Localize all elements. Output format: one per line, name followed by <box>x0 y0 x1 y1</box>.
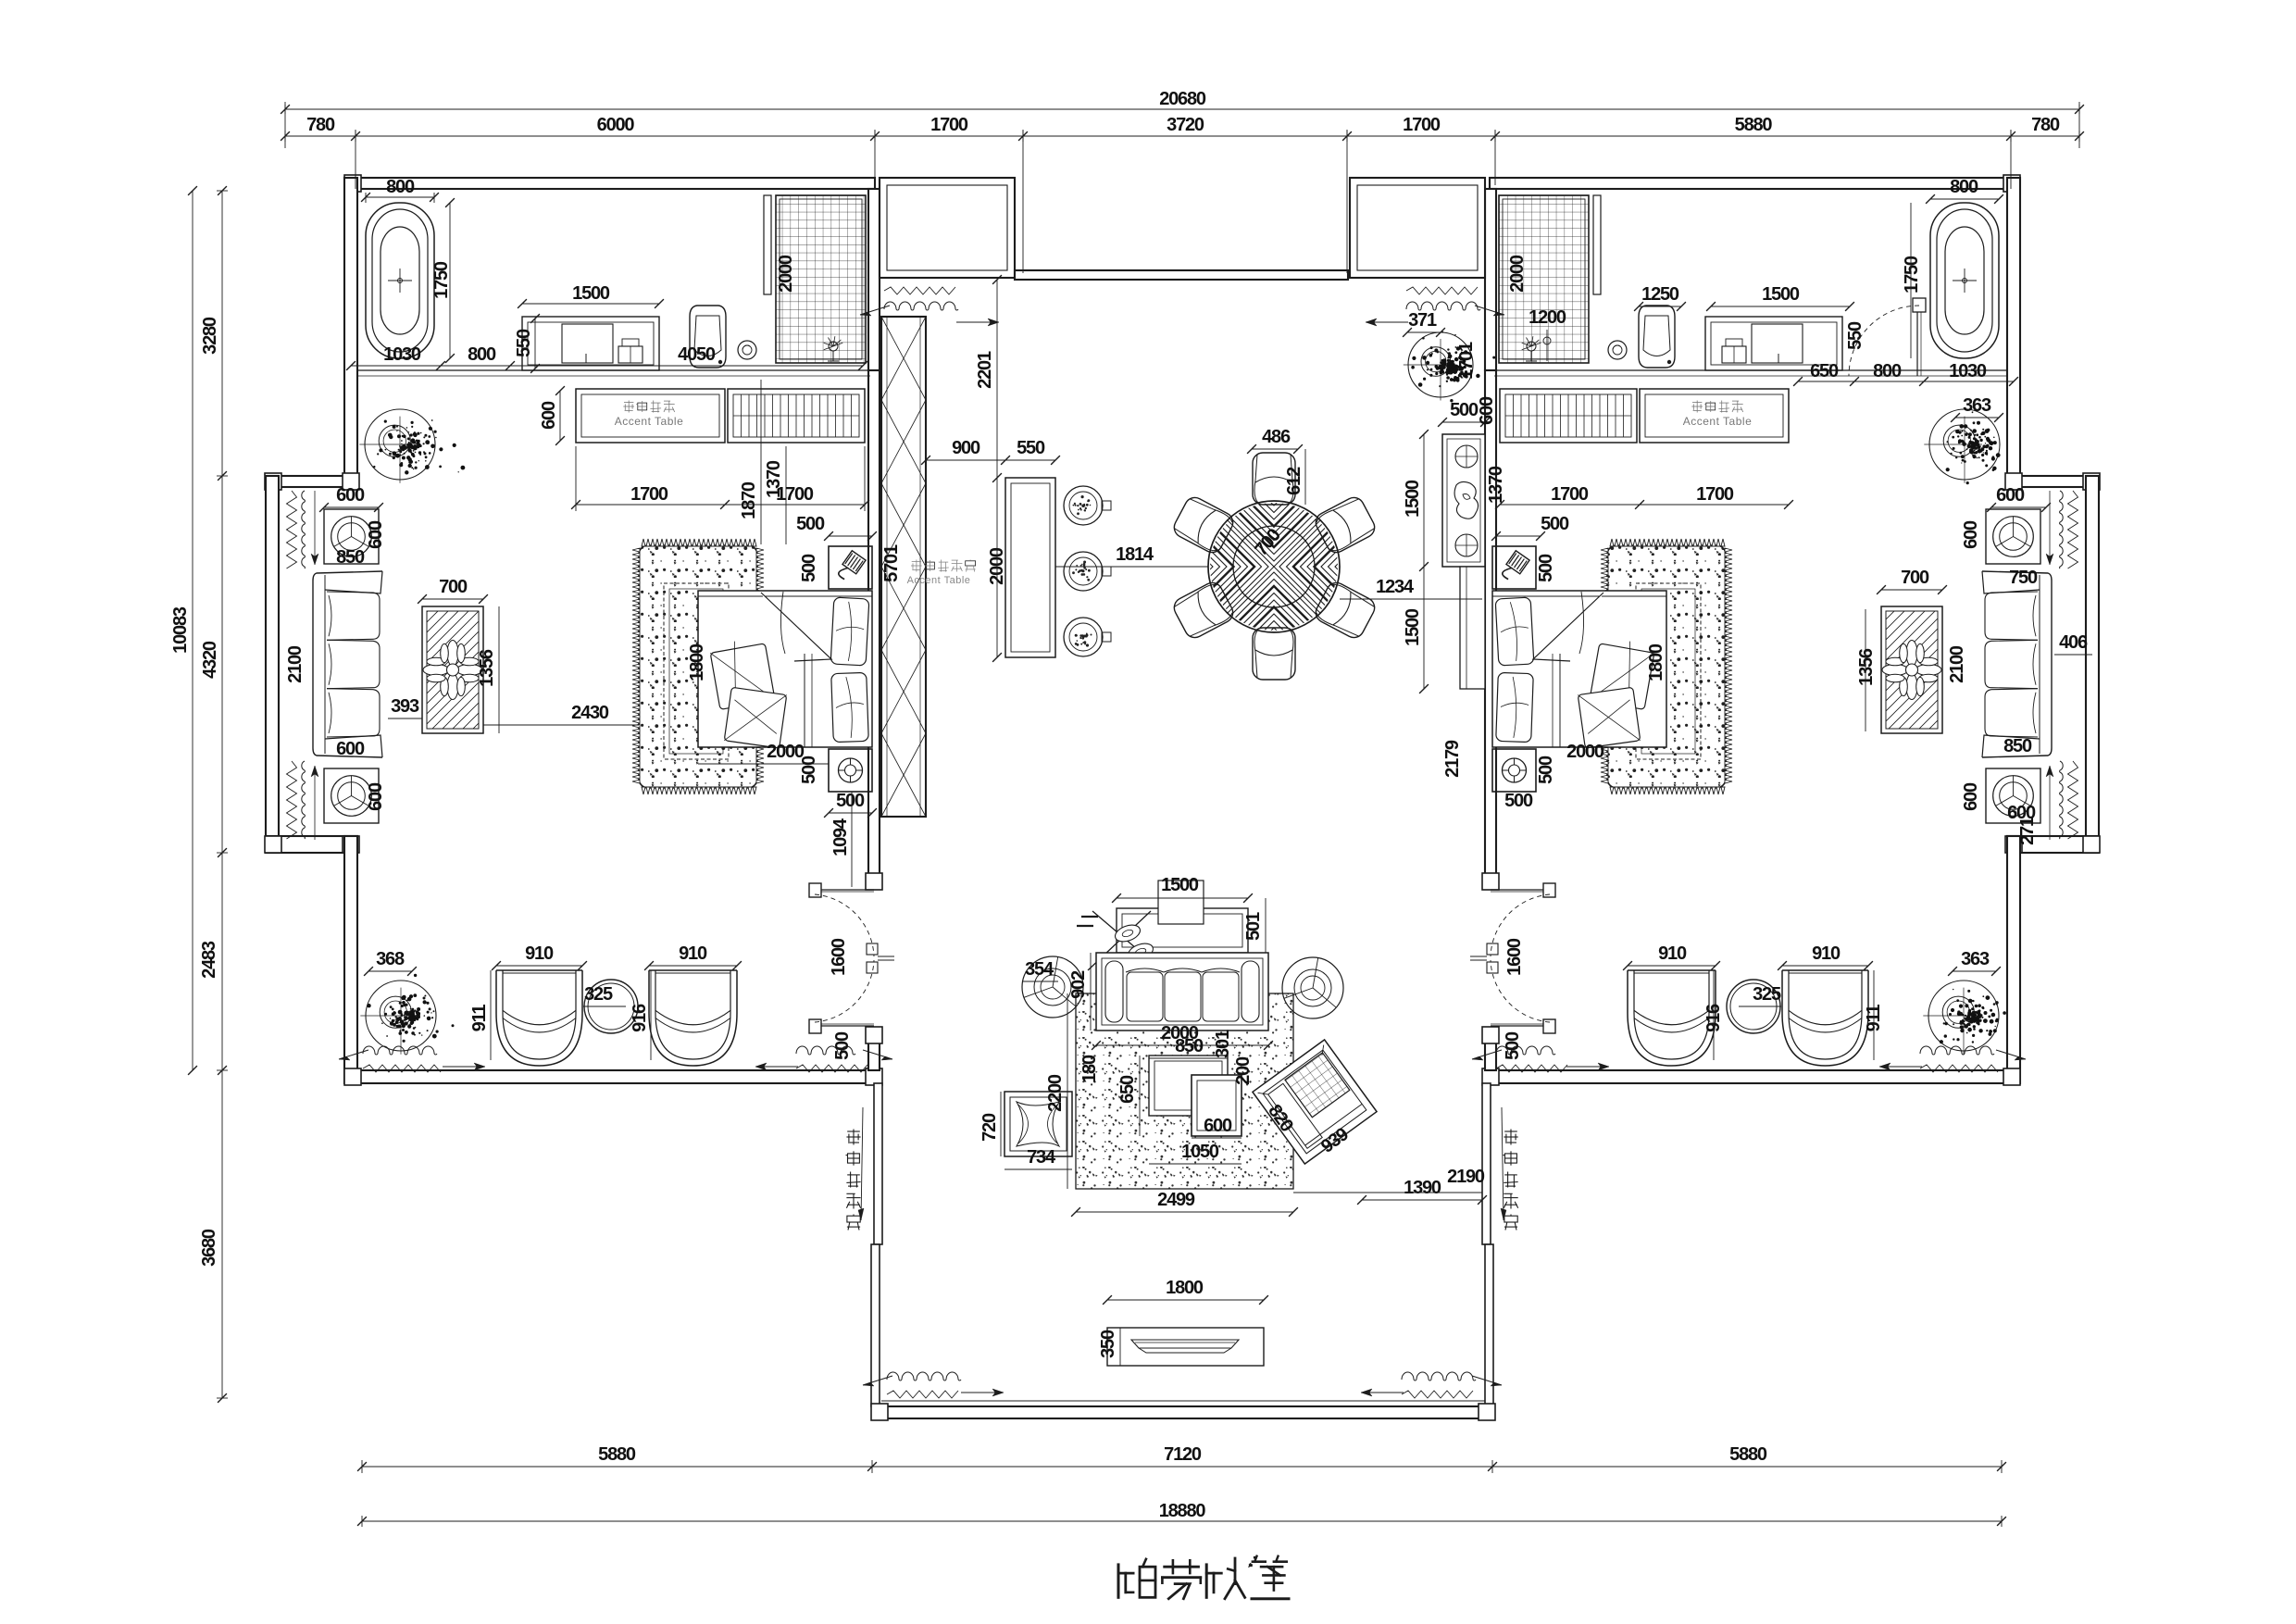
svg-text:2190: 2190 <box>1447 1167 1485 1187</box>
svg-text:600: 600 <box>1961 520 1981 549</box>
svg-text:850: 850 <box>2003 736 2032 756</box>
svg-text:4320: 4320 <box>200 641 220 679</box>
svg-text:20680: 20680 <box>1159 89 1206 109</box>
svg-text:1700: 1700 <box>1403 115 1441 135</box>
svg-text:1500: 1500 <box>1403 480 1423 518</box>
svg-text:5880: 5880 <box>1735 115 1773 135</box>
svg-text:780: 780 <box>306 115 335 135</box>
svg-text:600: 600 <box>1477 396 1497 425</box>
svg-text:850: 850 <box>336 547 365 568</box>
svg-text:363: 363 <box>1963 395 1991 416</box>
svg-text:1800: 1800 <box>1646 643 1666 681</box>
svg-text:371: 371 <box>1408 310 1437 331</box>
svg-text:393: 393 <box>391 696 419 717</box>
svg-text:1094: 1094 <box>830 818 851 856</box>
svg-text:354: 354 <box>1025 959 1054 980</box>
svg-text:2483: 2483 <box>199 941 219 979</box>
svg-text:3720: 3720 <box>1167 115 1204 135</box>
svg-text:900: 900 <box>952 438 980 458</box>
svg-text:5701: 5701 <box>881 544 902 582</box>
svg-text:650: 650 <box>1810 361 1839 381</box>
svg-text:1500: 1500 <box>1403 608 1423 646</box>
svg-text:Accent Table: Accent Table <box>907 575 971 586</box>
svg-text:1814: 1814 <box>1116 544 1154 565</box>
svg-text:5880: 5880 <box>598 1444 636 1465</box>
svg-text:368: 368 <box>376 949 405 969</box>
svg-text:1050: 1050 <box>1181 1142 1219 1162</box>
svg-text:363: 363 <box>1961 949 1990 969</box>
svg-text:916: 916 <box>630 1004 650 1032</box>
svg-text:6000: 6000 <box>597 115 635 135</box>
svg-text:1500: 1500 <box>1762 284 1800 305</box>
svg-text:325: 325 <box>1753 984 1781 1005</box>
svg-text:Accent Table: Accent Table <box>1683 415 1753 428</box>
svg-text:780: 780 <box>2031 115 2060 135</box>
svg-text:500: 500 <box>1541 514 1569 534</box>
svg-text:1500: 1500 <box>572 283 610 304</box>
svg-text:600: 600 <box>366 520 386 549</box>
svg-text:4050: 4050 <box>678 344 716 365</box>
svg-text:850: 850 <box>1175 1036 1204 1056</box>
svg-text:1356: 1356 <box>477 649 497 687</box>
svg-text:2000: 2000 <box>776 255 796 293</box>
svg-text:1030: 1030 <box>383 344 421 365</box>
svg-text:Accent Table: Accent Table <box>615 415 684 428</box>
svg-text:600: 600 <box>366 782 386 811</box>
svg-text:800: 800 <box>468 344 496 365</box>
svg-text:500: 500 <box>836 791 865 811</box>
svg-text:1030: 1030 <box>1949 361 1987 381</box>
svg-text:2000: 2000 <box>1566 742 1604 762</box>
svg-text:486: 486 <box>1262 427 1291 447</box>
svg-text:500: 500 <box>799 756 819 784</box>
svg-text:600: 600 <box>1996 485 2025 506</box>
svg-text:600: 600 <box>336 739 365 759</box>
svg-text:550: 550 <box>1017 438 1045 458</box>
svg-text:1370: 1370 <box>764 460 784 498</box>
svg-text:902: 902 <box>1068 970 1089 999</box>
svg-text:200: 200 <box>1233 1056 1254 1085</box>
svg-text:650: 650 <box>1117 1075 1138 1104</box>
svg-text:10083: 10083 <box>170 606 191 654</box>
svg-text:600: 600 <box>1961 782 1981 811</box>
svg-text:910: 910 <box>1658 943 1687 964</box>
svg-text:1701: 1701 <box>1456 342 1477 380</box>
svg-text:910: 910 <box>679 943 707 964</box>
svg-text:1500: 1500 <box>1161 875 1199 895</box>
svg-text:1750: 1750 <box>431 261 452 299</box>
svg-text:550: 550 <box>514 329 534 357</box>
svg-text:325: 325 <box>584 984 613 1005</box>
svg-text:2430: 2430 <box>571 703 609 723</box>
svg-text:1370: 1370 <box>1486 466 1506 504</box>
svg-text:750: 750 <box>2009 568 2038 588</box>
svg-text:1870: 1870 <box>739 481 759 519</box>
svg-text:301: 301 <box>1213 1030 1233 1058</box>
svg-text:800: 800 <box>386 177 415 197</box>
svg-text:500: 500 <box>799 554 819 582</box>
svg-text:2200: 2200 <box>1045 1074 1066 1112</box>
svg-text:7120: 7120 <box>1164 1444 1202 1465</box>
svg-text:734: 734 <box>1027 1147 1056 1168</box>
svg-text:600: 600 <box>539 401 559 430</box>
svg-text:1800: 1800 <box>1166 1278 1204 1298</box>
svg-text:2179: 2179 <box>1442 740 1463 778</box>
svg-text:911: 911 <box>469 1005 490 1032</box>
svg-text:350: 350 <box>1098 1330 1118 1358</box>
svg-text:720: 720 <box>980 1113 1000 1142</box>
svg-text:2201: 2201 <box>975 351 995 389</box>
svg-text:1700: 1700 <box>1696 484 1734 505</box>
svg-text:3680: 3680 <box>199 1229 219 1267</box>
svg-text:500: 500 <box>832 1031 853 1060</box>
svg-text:612: 612 <box>1284 467 1304 495</box>
svg-text:500: 500 <box>1503 1031 1523 1060</box>
svg-text:2100: 2100 <box>285 645 306 683</box>
svg-text:1700: 1700 <box>930 115 968 135</box>
svg-text:500: 500 <box>1536 554 1556 582</box>
svg-text:271: 271 <box>2017 817 2038 845</box>
svg-text:910: 910 <box>1812 943 1841 964</box>
svg-text:500: 500 <box>1504 791 1533 811</box>
svg-text:1600: 1600 <box>829 938 849 976</box>
svg-text:500: 500 <box>1450 400 1479 420</box>
svg-text:1250: 1250 <box>1641 284 1679 305</box>
svg-text:18880: 18880 <box>1159 1501 1206 1521</box>
svg-text:1356: 1356 <box>1856 648 1877 686</box>
svg-text:501: 501 <box>1243 912 1264 941</box>
svg-text:600: 600 <box>336 485 365 506</box>
svg-text:1700: 1700 <box>1551 484 1589 505</box>
svg-text:1390: 1390 <box>1404 1178 1441 1198</box>
svg-text:180: 180 <box>1079 1055 1100 1083</box>
svg-text:1800: 1800 <box>687 643 707 681</box>
svg-text:1600: 1600 <box>1504 938 1525 976</box>
svg-text:700: 700 <box>439 577 468 597</box>
svg-text:2499: 2499 <box>1157 1190 1195 1210</box>
svg-text:5880: 5880 <box>1729 1444 1767 1465</box>
svg-text:1750: 1750 <box>1902 256 1922 294</box>
svg-text:800: 800 <box>1950 177 1978 197</box>
svg-text:1234: 1234 <box>1376 577 1415 597</box>
svg-text:2000: 2000 <box>1507 255 1528 293</box>
svg-text:910: 910 <box>525 943 554 964</box>
svg-text:500: 500 <box>796 514 825 534</box>
svg-text:406: 406 <box>2059 632 2088 653</box>
svg-text:3280: 3280 <box>200 317 220 355</box>
svg-text:700: 700 <box>1901 568 1929 588</box>
svg-text:500: 500 <box>1536 756 1556 784</box>
svg-text:800: 800 <box>1873 361 1902 381</box>
svg-text:2100: 2100 <box>1947 645 1967 683</box>
svg-text:1700: 1700 <box>630 484 668 505</box>
svg-text:1200: 1200 <box>1529 307 1566 328</box>
svg-text:600: 600 <box>1204 1116 1232 1136</box>
